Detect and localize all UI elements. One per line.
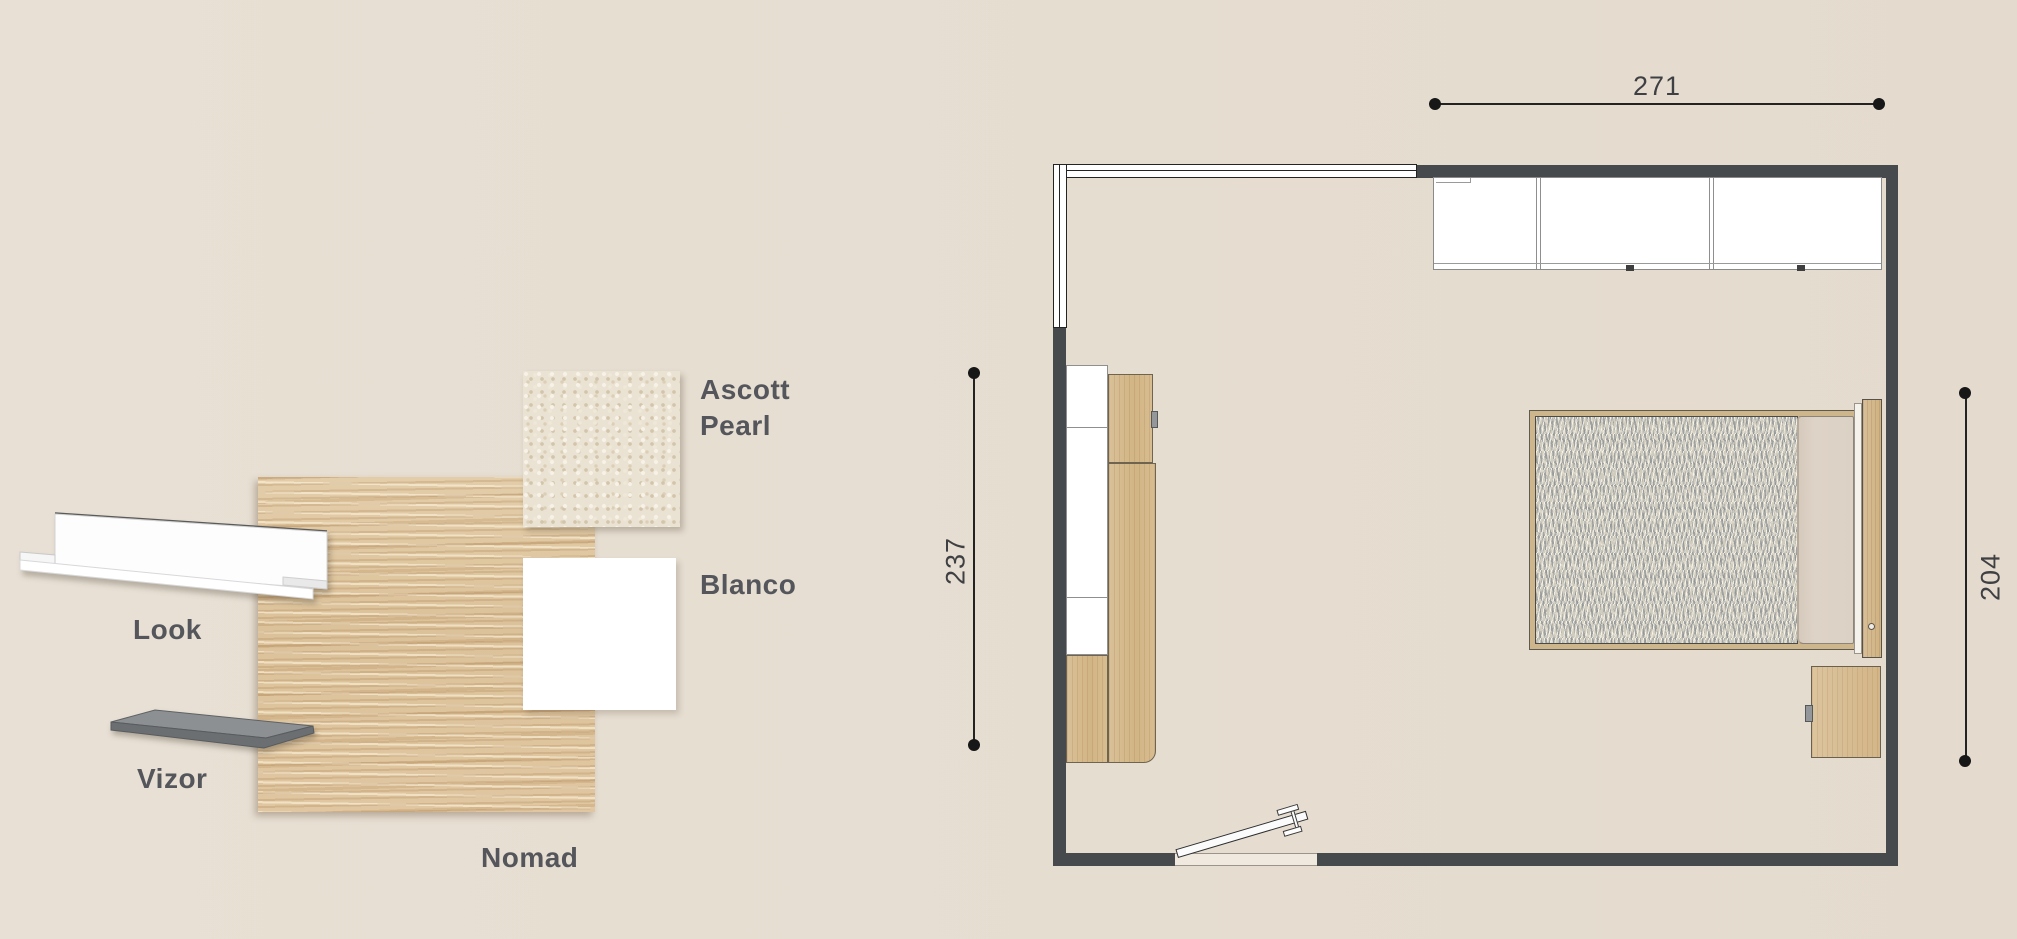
wall-left xyxy=(1053,327,1066,866)
wardrobe-divider xyxy=(1709,178,1714,269)
window-glass-line xyxy=(1059,165,1060,327)
material-label-blanco: Blanco xyxy=(700,567,796,603)
material-label-vizor: Vizor xyxy=(137,761,207,797)
bed-frame-edge xyxy=(1854,403,1862,654)
door-opening-threshold xyxy=(1175,853,1317,866)
dimension-endpoint xyxy=(1959,755,1971,767)
dimension-endpoint xyxy=(1959,387,1971,399)
wardrobe-door-handle-mark xyxy=(1797,265,1805,271)
window-top-wall xyxy=(1053,164,1417,178)
dimension-endpoint xyxy=(968,367,980,379)
wall-unit-wood-panel xyxy=(1108,463,1156,763)
material-label-ascott-pearl: Ascott Pearl xyxy=(700,372,840,444)
dimension-value-right: 204 xyxy=(1976,553,2007,601)
wall-unit-open-shelf-middle xyxy=(1066,427,1108,598)
dimension-value-top: 271 xyxy=(1627,71,1687,102)
carpet-swatch-ascott-pearl xyxy=(523,371,680,527)
wall-unit-open-shelf-lower xyxy=(1066,597,1108,655)
window-glass-line xyxy=(1054,170,1416,171)
door-handle-bar-outer xyxy=(1276,804,1299,816)
wardrobe-corner-notch xyxy=(1436,178,1471,183)
nightstand-handle xyxy=(1805,705,1813,722)
dimension-value-left: 237 xyxy=(941,537,972,585)
nightstand xyxy=(1811,666,1881,758)
dimension-endpoint xyxy=(968,739,980,751)
dimension-line-right xyxy=(1965,393,1967,761)
white-shelf-look-render xyxy=(15,505,335,605)
bed-pillow-area xyxy=(1797,416,1854,644)
wall-bottom-right-segment xyxy=(1317,853,1898,866)
wardrobe-divider xyxy=(1536,178,1541,269)
wall-unit-wood-cabinet-bottom xyxy=(1066,655,1108,763)
headboard-knob xyxy=(1868,623,1875,630)
door-leaf xyxy=(1175,811,1308,858)
wardrobe-top-wall xyxy=(1433,177,1882,270)
wardrobe-door-handle-mark xyxy=(1626,265,1634,271)
window-left-wall xyxy=(1053,164,1067,328)
dimension-line-left xyxy=(973,373,975,745)
dimension-endpoint xyxy=(1873,98,1885,110)
dimension-line-top xyxy=(1435,103,1879,105)
wall-right xyxy=(1886,165,1898,866)
room-planner-canvas: Look Vizor Nomad Ascott Pearl Blanco xyxy=(0,0,2017,939)
door-handle-bar-inner xyxy=(1283,826,1303,837)
gray-shelf-vizor-render xyxy=(105,706,320,750)
bed-headboard xyxy=(1862,399,1882,658)
material-label-look: Look xyxy=(133,612,202,648)
wall-unit-wood-cabinet-top xyxy=(1108,374,1153,463)
wall-unit-open-shelf-top xyxy=(1066,365,1108,428)
material-label-nomad: Nomad xyxy=(481,840,578,876)
wall-bottom-left-segment xyxy=(1053,853,1175,866)
bed-blanket-texture xyxy=(1535,416,1798,644)
finish-swatch-blanco xyxy=(523,558,676,710)
wall-unit-handle xyxy=(1151,411,1158,428)
dimension-endpoint xyxy=(1429,98,1441,110)
wardrobe-front-edge xyxy=(1434,263,1881,269)
